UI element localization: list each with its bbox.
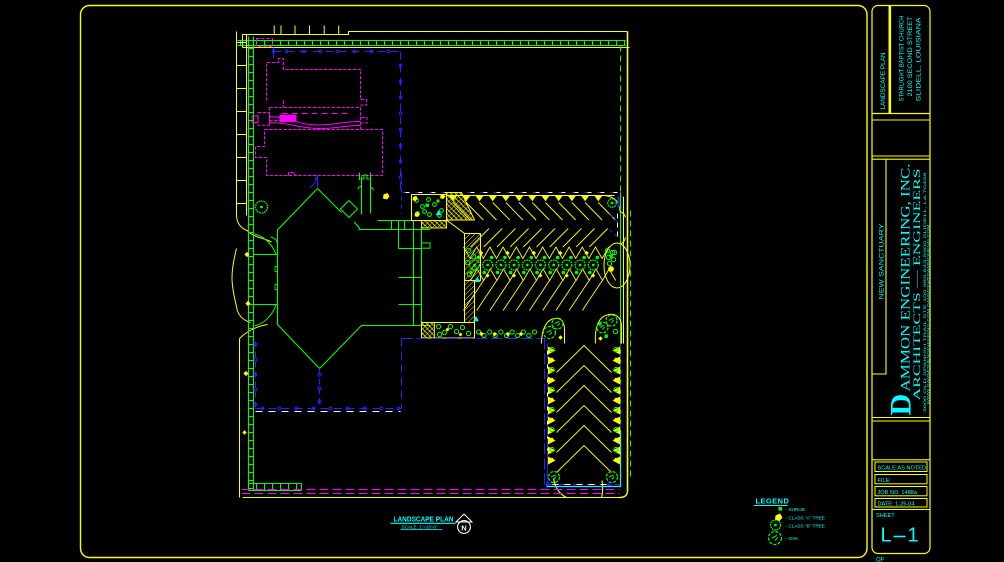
svg-text:DATE: 1-25-04: DATE: 1-25-04 bbox=[878, 502, 915, 508]
svg-text:1: 1 bbox=[908, 525, 919, 547]
svg-text:SCALE: 1”=20’-0”: SCALE: 1”=20’-0” bbox=[402, 525, 439, 530]
svg-text:LANDSCAPE PLAN: LANDSCAPE PLAN bbox=[394, 515, 454, 524]
svg-text:- CLASS “A” TREE: - CLASS “A” TREE bbox=[786, 516, 826, 521]
svg-text:AMMON ENGINEERING, INC.: AMMON ENGINEERING, INC. bbox=[899, 164, 913, 392]
svg-text:OF: OF bbox=[876, 558, 885, 562]
svg-text:FILE:: FILE: bbox=[878, 478, 892, 484]
svg-text:LEGEND: LEGEND bbox=[756, 497, 790, 506]
svg-text:LANDSCAPE PLAN: LANDSCAPE PLAN bbox=[880, 52, 887, 109]
svg-text:- SHRUB: - SHRUB bbox=[786, 507, 805, 512]
svg-text:- OAK: - OAK bbox=[786, 536, 800, 541]
svg-text:WWW.DAMMONENGINEERING.COM DA: WWW.DAMMONENGINEERING.COM DAMMON@DAMMONE… bbox=[927, 224, 931, 404]
svg-text:L: L bbox=[881, 525, 892, 547]
svg-text:- CLASS “B” TREE: - CLASS “B” TREE bbox=[786, 524, 826, 529]
svg-text:SLIDELL, LOUISIANA: SLIDELL, LOUISIANA bbox=[916, 17, 923, 102]
svg-text:ARCHITECTS — ENGINEERS: ARCHITECTS — ENGINEERS bbox=[912, 169, 922, 401]
svg-text:N: N bbox=[461, 524, 466, 533]
svg-text:JOB NO. 1488a: JOB NO. 1488a bbox=[878, 490, 918, 496]
svg-text:NEW SANCTUARY: NEW SANCTUARY bbox=[879, 223, 886, 300]
svg-text:2100 SECOND STREET: 2100 SECOND STREET bbox=[907, 17, 914, 97]
svg-text:SCALE:AS NOTED: SCALE:AS NOTED bbox=[878, 466, 927, 472]
svg-text:STARLIGHT BAPTIST CHURCH: STARLIGHT BAPTIST CHURCH bbox=[899, 15, 906, 101]
svg-text:SHEET: SHEET bbox=[876, 513, 895, 519]
